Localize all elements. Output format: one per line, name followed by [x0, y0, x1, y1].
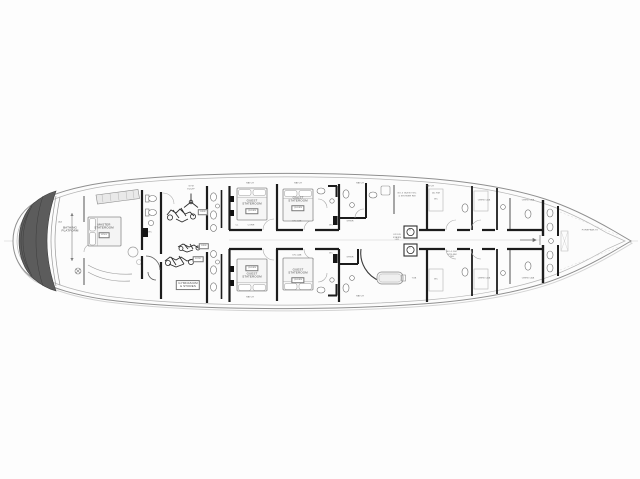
sink — [549, 239, 554, 244]
plan-label: SHWR — [346, 257, 353, 260]
plan-label: FOREPEAK TK — [582, 230, 598, 233]
plan-label: HATCH — [426, 186, 434, 189]
sink — [350, 203, 355, 208]
locker — [333, 254, 338, 263]
plan-label: GUEST STATEROOM — [288, 197, 307, 204]
sink — [501, 205, 506, 210]
plan-label: HATCH — [356, 296, 364, 299]
plan-label: MASTER STATEROOM — [94, 224, 113, 231]
toilet — [211, 193, 217, 201]
plan-label: HATCH — [246, 183, 254, 186]
pillow — [239, 190, 252, 196]
plan-label: KING — [99, 232, 110, 238]
toilet — [149, 196, 157, 202]
plan-label: HATCH — [294, 183, 302, 186]
plan-label: DN-CAB — [293, 221, 302, 224]
plan-label: AC RM — [432, 193, 440, 196]
toilet — [547, 209, 553, 217]
plan-label: DN-CAB — [293, 255, 302, 258]
plan-label: GUEST STATEROOM — [242, 273, 261, 280]
toilet — [343, 190, 349, 198]
plan-label: W — [409, 230, 411, 233]
pillow — [90, 233, 96, 246]
sink — [148, 220, 153, 225]
pillow — [253, 190, 266, 196]
plan-label: CREW CAB — [522, 278, 535, 281]
toilet — [462, 204, 468, 212]
plan-label: GYM EQUIP — [187, 185, 194, 190]
plan-label: CREW CAB — [478, 200, 491, 203]
plan-label: LAZ — [58, 222, 62, 225]
plan-label: WC — [329, 253, 333, 256]
plan-label: QUEEN — [245, 208, 258, 214]
toilet — [317, 188, 325, 194]
locker — [333, 216, 338, 225]
toilet — [211, 211, 217, 219]
plan-label: GUEST STATEROOM — [242, 200, 261, 207]
plan-label: QUEEN — [291, 205, 304, 211]
plan-label: BIKE — [198, 209, 208, 215]
toilet — [317, 287, 325, 293]
plan-label: NO.3 GUEST WC & SHOWER RM — [398, 192, 417, 197]
plan-label: GUEST STATEROOM — [288, 269, 307, 276]
plan-label: CL — [236, 225, 239, 228]
yacht-deck-plan — [0, 0, 640, 479]
plan-label: SHWR — [346, 221, 353, 224]
plan-label: BIKE — [199, 243, 209, 249]
nightstand — [231, 196, 235, 202]
plan-label: WC — [148, 232, 152, 235]
plan-label: CREW CAB — [478, 278, 491, 281]
plan-label: WC — [434, 279, 438, 282]
plan-label: ROW — [193, 256, 204, 262]
plan-label: NO.4 GST STR-RM DBL — [446, 251, 457, 259]
plan-label: D — [409, 248, 411, 251]
sink — [216, 204, 220, 208]
plan-label: HATCH — [246, 297, 254, 300]
deck-plan-canvas: LAZBATHING PLATFORMMASTER STATEROOMKINGW… — [0, 0, 640, 479]
plan-label: CORR — [248, 225, 255, 228]
plan-label: WC — [329, 225, 333, 228]
plan-label: QUEEN — [245, 265, 258, 271]
plan-label: WC — [434, 199, 438, 202]
bidet — [149, 210, 157, 216]
plan-label: GYMNASIUM & STORES — [176, 280, 200, 290]
plan-label: BATHING PLATFORM — [62, 227, 79, 234]
plan-label: QUEEN — [291, 277, 304, 283]
plan-label: HATCH — [356, 183, 364, 186]
sink — [330, 199, 334, 203]
plan-label: UP-DN STAIRS LBY — [393, 234, 401, 242]
plan-label: TUB — [412, 278, 417, 281]
plan-label: CREW CAB — [522, 200, 535, 203]
